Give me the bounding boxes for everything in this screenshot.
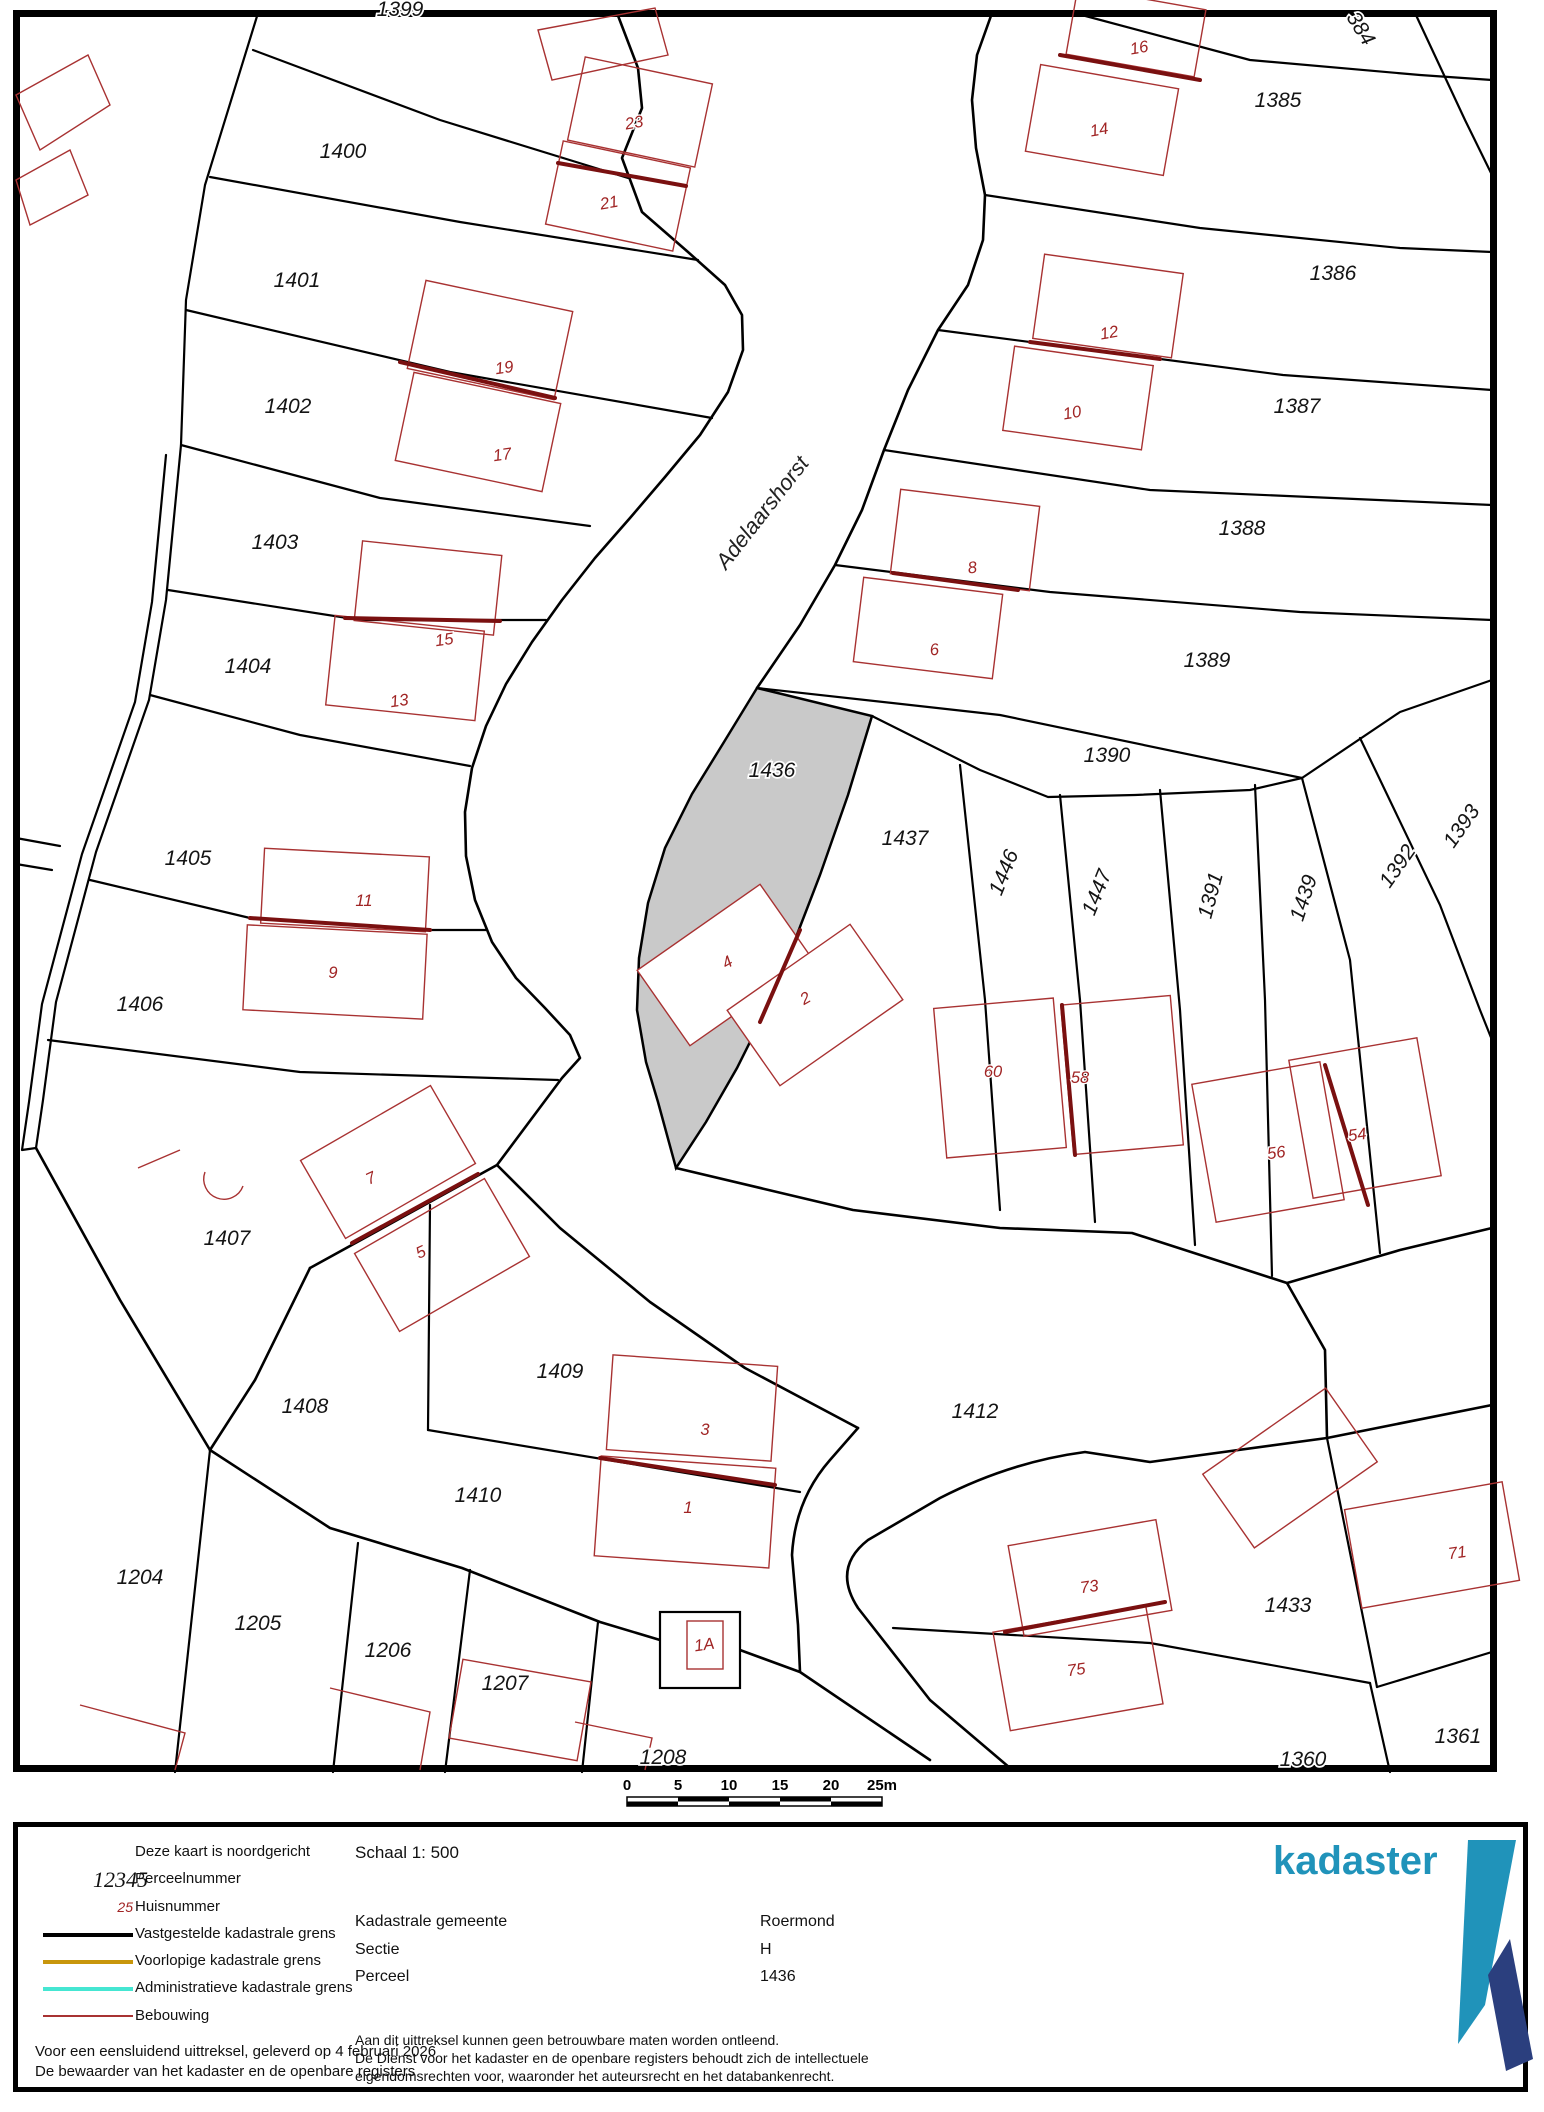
kadaster-logo-icon [1443, 1837, 1538, 2082]
parcel-label: 1437 [882, 827, 930, 850]
parcel-label: 1409 [537, 1360, 584, 1383]
house-label: 13 [389, 691, 410, 711]
house-label: 19 [494, 358, 515, 378]
legend-line-bebouwing [43, 2015, 133, 2017]
house-label: 15 [434, 630, 455, 650]
legend-item-administratief: Administratieve kadastrale grens [135, 1979, 353, 1996]
parcel-label: 1389 [1184, 649, 1231, 672]
house-label: 1 [683, 1499, 692, 1517]
house-label: 71 [1447, 1543, 1468, 1563]
parcel-label: 1412 [952, 1400, 999, 1423]
parcel-label: 1407 [204, 1227, 252, 1250]
house-label: 14 [1089, 120, 1110, 141]
house-label: 54 [1347, 1125, 1368, 1145]
house-label: 58 [1071, 1069, 1090, 1087]
parcel-label: 1403 [252, 531, 299, 554]
parcel-label: 1207 [482, 1672, 530, 1695]
house-label: 3 [700, 1421, 710, 1439]
house-label: 9 [328, 964, 337, 982]
parcel-label: 1208 [640, 1746, 687, 1769]
parcel-label: 1410 [455, 1484, 502, 1507]
parcel-label: 1387 [1274, 395, 1322, 418]
kadaster-logo-text: kadaster [1273, 1839, 1438, 1884]
map-canvas: 1399140014011402140314041405140614071408… [0, 0, 1544, 1815]
parcel-label: 1385 [1255, 89, 1302, 112]
legend-item-huisnummer: Huisnummer [135, 1898, 220, 1915]
house-label: 21 [598, 193, 620, 214]
parcel-label: 1390 [1084, 744, 1131, 767]
legend-item-vastgesteld: Vastgestelde kadastrale grens [135, 1925, 336, 1942]
legend-line-voorlopig [43, 1960, 133, 1964]
disclaimer-line-3: eigendomsrechten voor, waaronder het aut… [355, 2068, 834, 2084]
scale-tick-label: 25m [867, 1777, 897, 1794]
parcel-label: 1402 [265, 395, 312, 418]
parcel-label: 1361 [1435, 1725, 1482, 1748]
parcel-label: 1436 [749, 759, 796, 782]
scale-tick-label: 15 [772, 1777, 789, 1794]
field-label-sectie: Sectie [355, 1941, 399, 1959]
scale-tick-label: 10 [721, 1777, 738, 1794]
house-label: 23 [623, 112, 646, 133]
parcel-label: 1401 [274, 269, 321, 292]
scale-tick-label: 5 [674, 1777, 682, 1794]
scale-bar: 0510152025m [623, 1777, 897, 1806]
legend-line-administratief [43, 1987, 133, 1991]
parcel-label: 1360 [1280, 1748, 1327, 1771]
field-label-gemeente: Kadastrale gemeente [355, 1913, 507, 1931]
parcel-label: 1404 [225, 655, 272, 678]
house-label: 1A [693, 1635, 715, 1656]
legend-item-bebouwing: Bebouwing [135, 2007, 209, 2024]
legend-item-perceelnummer: Perceelnummer [135, 1870, 241, 1887]
parcel-label: 1206 [365, 1639, 412, 1662]
legend-item-voorlopig: Voorlopige kadastrale grens [135, 1952, 321, 1969]
scale-tick-label: 0 [623, 1777, 631, 1794]
parcel-label: 1205 [235, 1612, 282, 1635]
disclaimer-line-1: Aan dit uittreksel kunnen geen betrouwba… [355, 2032, 779, 2048]
scale-tick-label: 20 [823, 1777, 840, 1794]
parcel-label: 1204 [117, 1566, 164, 1589]
house-label: 73 [1079, 1577, 1100, 1597]
disclaimer-line-2: De Dienst voor het kadaster en de openba… [355, 2050, 869, 2066]
house-label: 12 [1099, 323, 1120, 344]
house-label: 17 [492, 445, 513, 465]
field-value-sectie: H [760, 1941, 772, 1959]
field-value-perceel: 1436 [760, 1968, 796, 1986]
info-panel: 12345 25 Deze kaart is noordgericht Perc… [13, 1822, 1528, 2092]
legend-line-vastgesteld [43, 1933, 133, 1937]
parcel-label: 1405 [165, 847, 212, 870]
field-label-perceel: Perceel [355, 1968, 409, 1986]
house-label: 75 [1066, 1660, 1087, 1680]
parcel-label: 1406 [117, 993, 164, 1016]
legend-item-noordgericht: Deze kaart is noordgericht [135, 1843, 310, 1860]
field-value-gemeente: Roermond [760, 1913, 835, 1931]
parcel-label: 1399 [377, 0, 424, 21]
house-label: 11 [355, 892, 372, 910]
cadastral-map: 1399140014011402140314041405140614071408… [0, 0, 1544, 1815]
house-label: 60 [984, 1063, 1003, 1081]
parcel-label: 1400 [320, 140, 367, 163]
house-label: 56 [1266, 1143, 1287, 1163]
parcel-label: 1386 [1310, 262, 1357, 285]
parcel-label: 1433 [1265, 1594, 1312, 1617]
parcel-label: 1388 [1219, 517, 1266, 540]
kadaster-map-extract: { "map": { "street_name": "Adelaarshorst… [0, 0, 1544, 2112]
parcel-label: 1408 [282, 1395, 329, 1418]
legend-sample-housenumber: 25 [93, 1899, 133, 1915]
schaal-value: Schaal 1: 500 [355, 1843, 459, 1863]
